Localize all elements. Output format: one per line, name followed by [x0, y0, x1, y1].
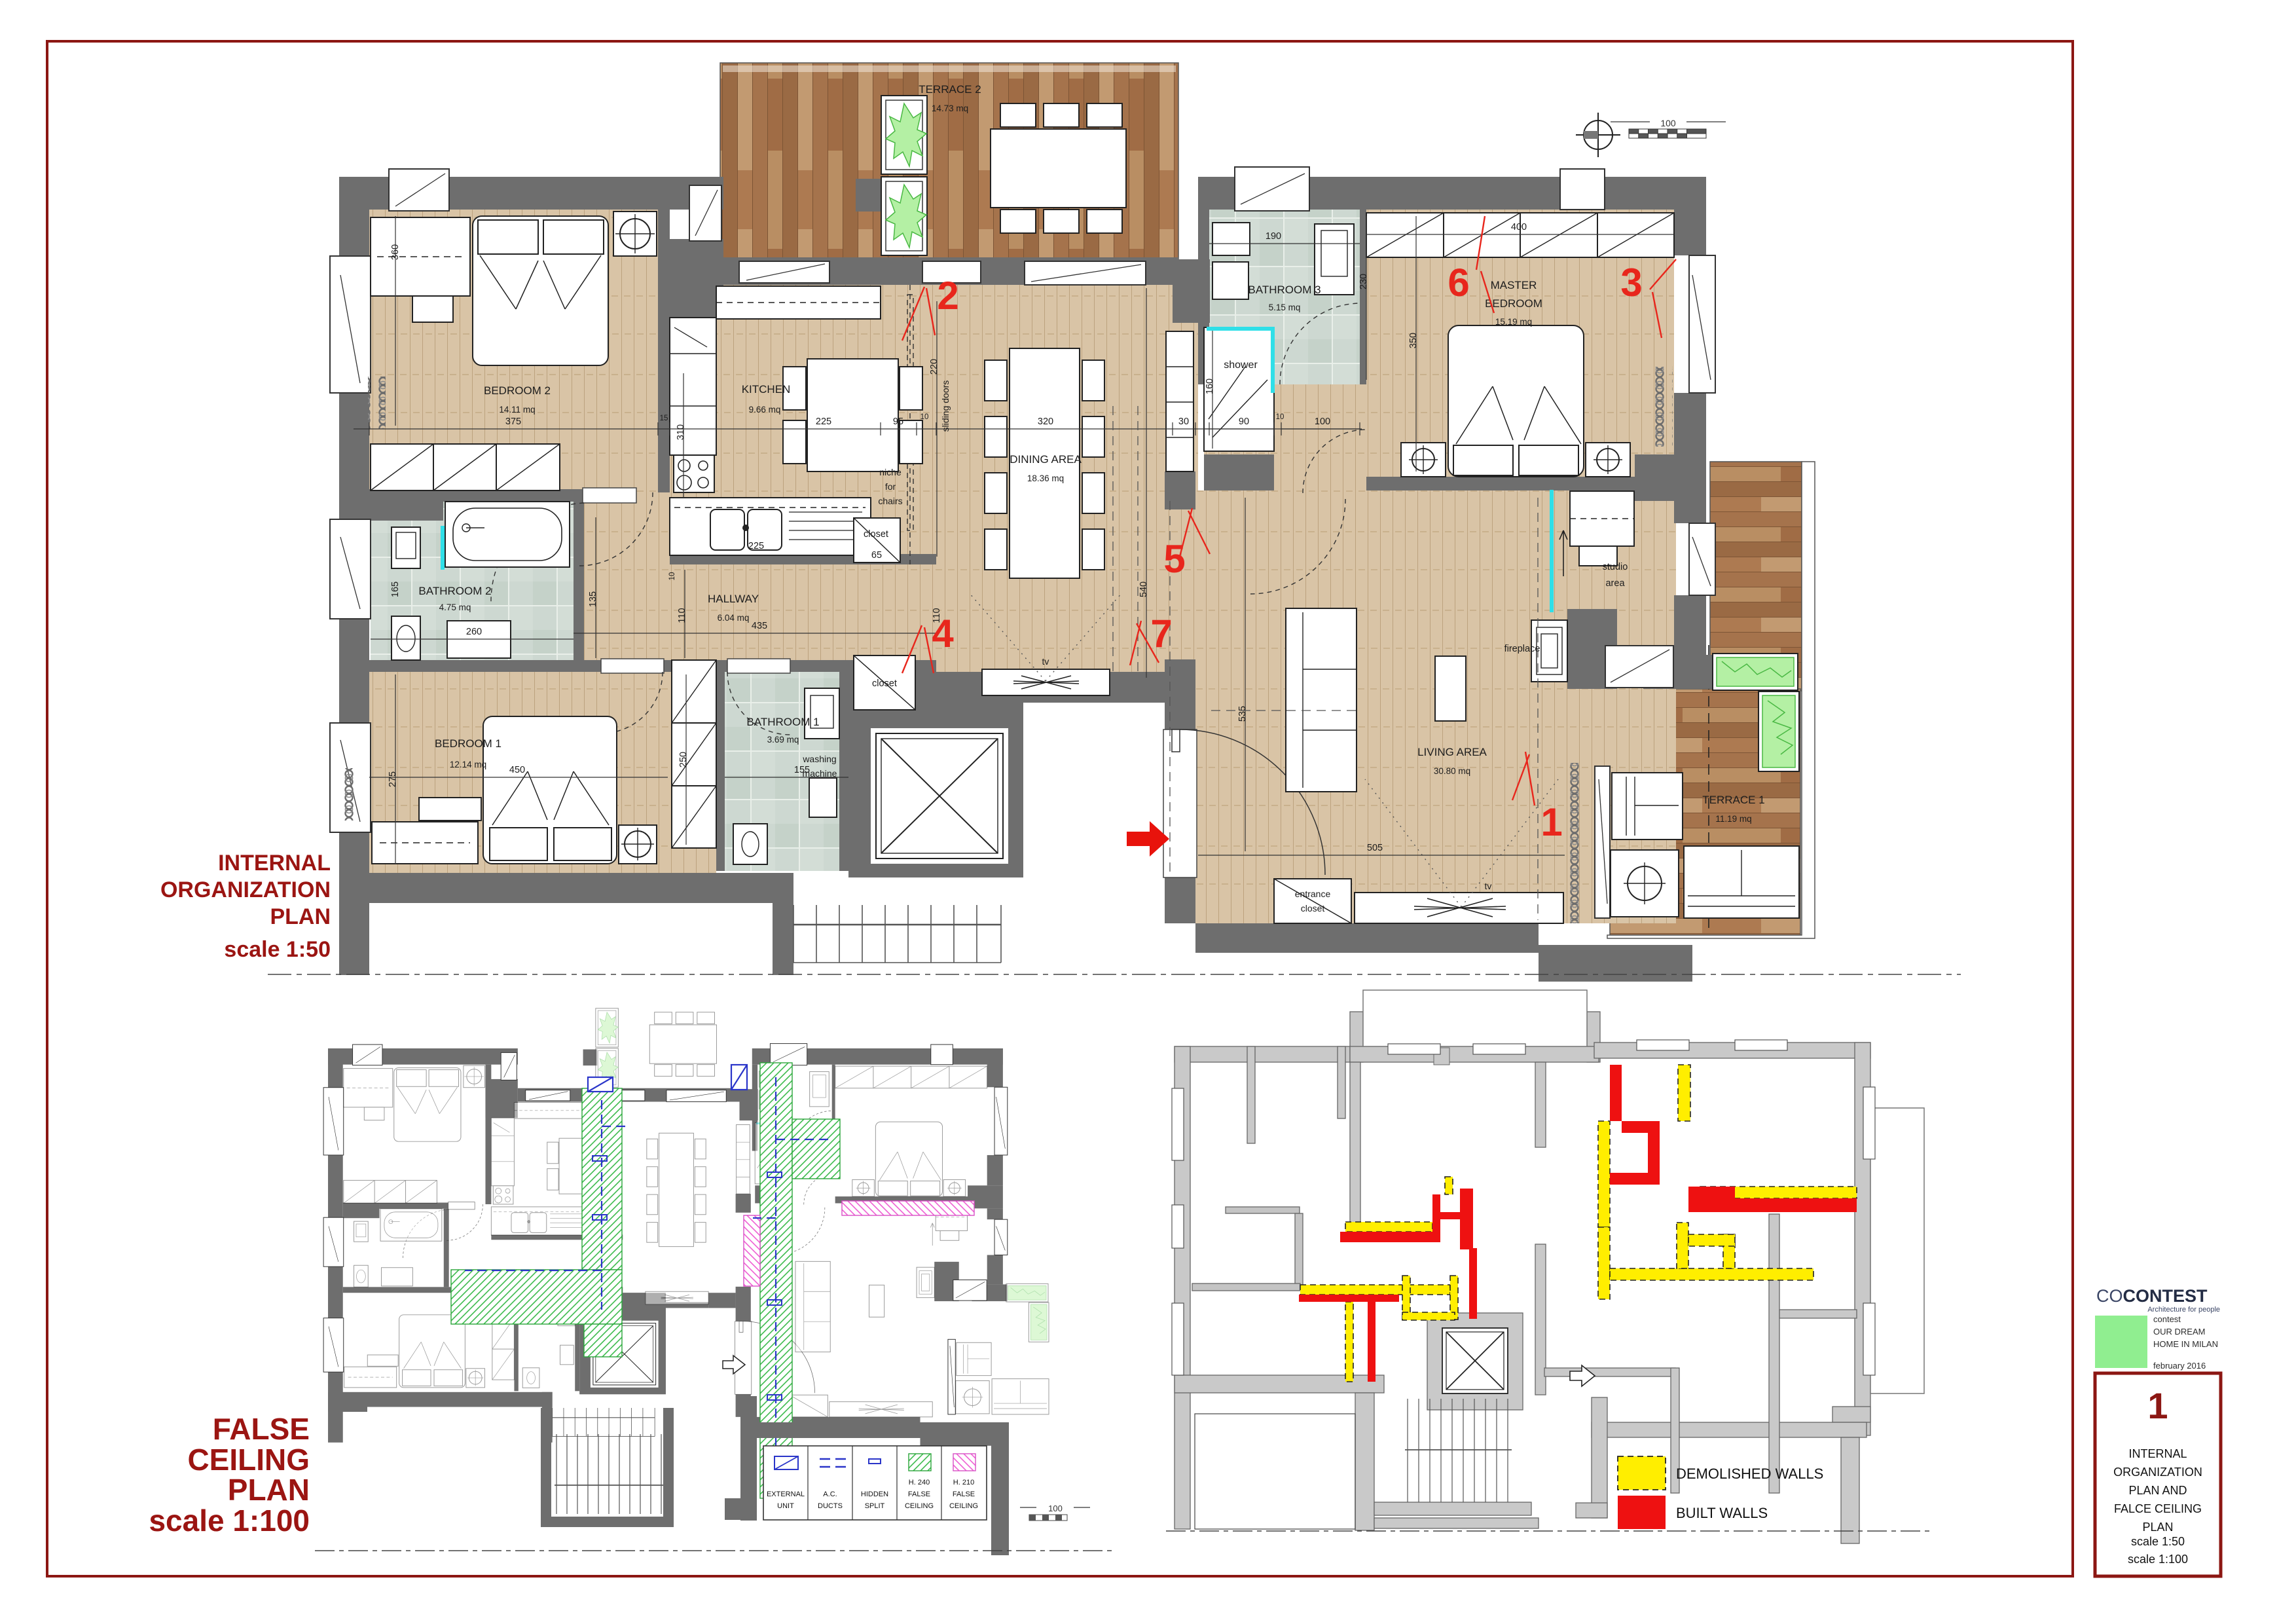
svg-text:220: 220 [929, 359, 939, 375]
svg-text:A.C.: A.C. [823, 1490, 837, 1498]
svg-text:DUCTS: DUCTS [818, 1502, 843, 1510]
svg-text:TERRACE 1: TERRACE 1 [1702, 794, 1764, 806]
svg-text:15.19 mq: 15.19 mq [1495, 317, 1532, 327]
svg-text:65: 65 [871, 550, 882, 561]
svg-text:CEILING: CEILING [905, 1502, 934, 1510]
svg-text:10: 10 [920, 413, 929, 421]
svg-text:HIDDEN: HIDDEN [861, 1490, 888, 1498]
svg-text:160: 160 [1205, 378, 1215, 394]
svg-text:shower: shower [1224, 360, 1258, 371]
svg-text:435: 435 [752, 621, 767, 631]
svg-text:4.75 mq: 4.75 mq [439, 602, 471, 612]
svg-text:scale 1:100: scale 1:100 [149, 1504, 310, 1538]
svg-text:OUR DREAM: OUR DREAM [2153, 1327, 2205, 1337]
svg-text:310: 310 [676, 424, 686, 440]
svg-text:HOME IN MILAN: HOME IN MILAN [2153, 1339, 2218, 1349]
svg-text:ORGANIZATION: ORGANIZATION [2113, 1466, 2202, 1479]
svg-text:february 2016: february 2016 [2153, 1361, 2206, 1371]
svg-text:11.19 mq: 11.19 mq [1715, 814, 1751, 824]
svg-text:100: 100 [1048, 1504, 1063, 1513]
svg-text:505: 505 [1367, 843, 1383, 853]
svg-text:BEDROOM 2: BEDROOM 2 [484, 384, 551, 397]
svg-text:closet: closet [864, 529, 888, 540]
svg-text:tv: tv [1042, 656, 1049, 667]
svg-text:scale 1:100: scale 1:100 [2128, 1553, 2188, 1566]
svg-text:machine: machine [803, 768, 837, 779]
svg-text:FALCE CEILING: FALCE CEILING [2114, 1502, 2202, 1515]
svg-text:HALLWAY: HALLWAY [708, 593, 759, 605]
svg-text:30.80 mq: 30.80 mq [1434, 766, 1470, 776]
svg-text:230: 230 [1358, 274, 1369, 289]
svg-text:studio: studio [1603, 562, 1628, 572]
svg-text:BEDROOM: BEDROOM [1485, 297, 1542, 310]
svg-text:7: 7 [1150, 612, 1172, 655]
svg-text:225: 225 [748, 541, 764, 551]
svg-text:KITCHEN: KITCHEN [742, 383, 791, 396]
svg-text:135: 135 [588, 591, 598, 607]
svg-text:fireplace: fireplace [1504, 644, 1540, 654]
svg-text:4: 4 [932, 612, 954, 655]
svg-text:EXTERNAL: EXTERNAL [767, 1490, 805, 1498]
svg-text:for: for [885, 481, 896, 492]
svg-text:15: 15 [660, 415, 668, 422]
svg-text:100: 100 [1315, 416, 1330, 427]
svg-text:10: 10 [1276, 413, 1285, 421]
svg-text:H. 240: H. 240 [909, 1479, 930, 1486]
svg-text:scale 1:50: scale 1:50 [224, 937, 331, 962]
svg-text:FALSE: FALSE [213, 1412, 310, 1446]
svg-text:12.14 mq: 12.14 mq [450, 760, 486, 769]
svg-text:PLAN: PLAN [2142, 1521, 2173, 1534]
svg-text:PLAN AND: PLAN AND [2128, 1484, 2187, 1497]
svg-text:110: 110 [677, 608, 687, 623]
svg-text:95: 95 [893, 416, 903, 427]
svg-text:375: 375 [505, 416, 521, 427]
svg-text:entrance: entrance [1295, 889, 1331, 899]
svg-text:LIVING AREA: LIVING AREA [1417, 746, 1487, 758]
svg-text:540: 540 [1139, 581, 1149, 597]
svg-text:5.15 mq: 5.15 mq [1269, 303, 1301, 312]
svg-text:INTERNAL: INTERNAL [218, 851, 331, 876]
svg-text:FALSE: FALSE [908, 1490, 930, 1498]
svg-text:30: 30 [1178, 416, 1189, 427]
svg-text:225: 225 [816, 416, 831, 427]
svg-text:COCONTEST: COCONTEST [2096, 1286, 2208, 1306]
svg-text:10: 10 [668, 572, 676, 581]
svg-text:CEILING: CEILING [187, 1443, 310, 1477]
svg-text:CEILING: CEILING [949, 1502, 978, 1510]
svg-text:BATHROOM 3: BATHROOM 3 [1248, 284, 1321, 296]
svg-text:FALSE: FALSE [953, 1490, 975, 1498]
svg-text:MASTER: MASTER [1491, 279, 1537, 291]
svg-text:PLAN: PLAN [270, 904, 331, 929]
svg-text:INTERNAL: INTERNAL [2128, 1447, 2187, 1460]
svg-text:275: 275 [388, 771, 398, 787]
svg-text:535: 535 [1237, 706, 1248, 722]
svg-text:3: 3 [1620, 261, 1642, 304]
svg-text:90: 90 [1239, 416, 1249, 427]
svg-text:165: 165 [390, 581, 401, 597]
svg-text:chairs: chairs [878, 496, 902, 506]
svg-text:closet: closet [1301, 903, 1325, 913]
svg-text:360: 360 [390, 244, 401, 260]
svg-text:1: 1 [2147, 1385, 2168, 1426]
svg-text:BATHROOM 2: BATHROOM 2 [418, 585, 491, 597]
svg-text:scale 1:50: scale 1:50 [2131, 1535, 2185, 1548]
svg-text:2: 2 [937, 274, 958, 318]
svg-text:niche: niche [879, 467, 902, 477]
svg-text:H. 210: H. 210 [953, 1479, 974, 1486]
svg-text:SPLIT: SPLIT [865, 1502, 885, 1510]
svg-text:BEDROOM 1: BEDROOM 1 [435, 737, 501, 750]
svg-text:ORGANIZATION: ORGANIZATION [160, 877, 331, 902]
svg-text:14.73 mq: 14.73 mq [932, 103, 968, 113]
svg-text:1: 1 [1540, 800, 1562, 844]
svg-text:3.69 mq: 3.69 mq [767, 735, 799, 745]
svg-text:washing: washing [802, 754, 836, 764]
svg-text:Architecture for people: Architecture for people [2147, 1306, 2220, 1314]
svg-text:320: 320 [1038, 416, 1053, 427]
svg-text:DEMOLISHED WALLS: DEMOLISHED WALLS [1676, 1466, 1823, 1482]
svg-text:BATHROOM 1: BATHROOM 1 [746, 716, 819, 728]
svg-text:350: 350 [1408, 333, 1419, 348]
svg-text:sliding doors: sliding doors [940, 380, 951, 432]
svg-text:400: 400 [1511, 222, 1527, 232]
svg-text:450: 450 [509, 765, 525, 775]
svg-text:190: 190 [1266, 231, 1281, 242]
svg-text:100: 100 [1660, 118, 1676, 128]
svg-text:closet: closet [872, 678, 897, 689]
svg-text:area: area [1605, 578, 1625, 589]
svg-text:6: 6 [1448, 261, 1469, 304]
svg-text:5: 5 [1163, 537, 1185, 581]
svg-text:UNIT: UNIT [777, 1502, 794, 1510]
svg-text:contest: contest [2153, 1314, 2181, 1324]
svg-text:DINING AREA: DINING AREA [1010, 453, 1082, 466]
svg-text:250: 250 [678, 752, 689, 767]
svg-text:tv: tv [1485, 881, 1492, 891]
svg-text:18.36 mq: 18.36 mq [1027, 473, 1064, 483]
svg-text:260: 260 [466, 627, 482, 637]
svg-text:9.66 mq: 9.66 mq [749, 405, 781, 415]
svg-text:BUILT WALLS: BUILT WALLS [1676, 1505, 1768, 1521]
svg-text:TERRACE 2: TERRACE 2 [919, 83, 981, 96]
svg-text:PLAN: PLAN [228, 1473, 310, 1507]
svg-text:6.04 mq: 6.04 mq [718, 613, 750, 623]
svg-text:14.11 mq: 14.11 mq [499, 405, 535, 415]
